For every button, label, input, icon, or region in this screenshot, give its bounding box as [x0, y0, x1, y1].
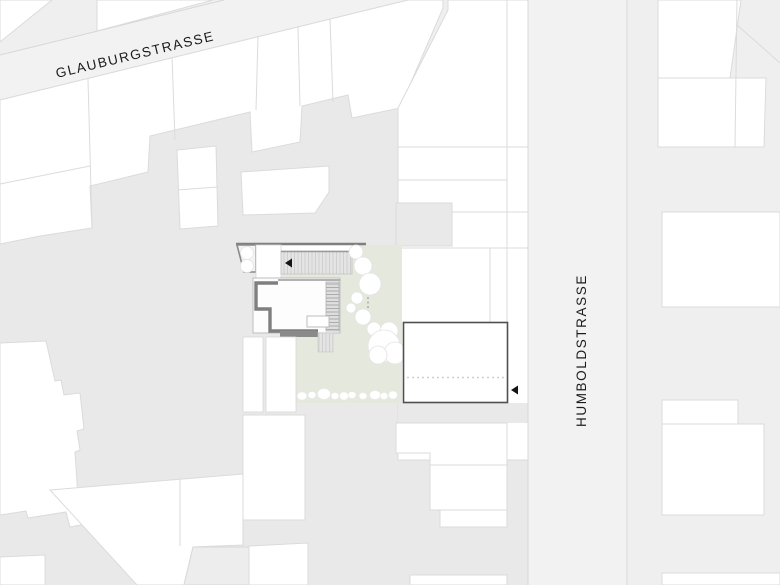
parcel — [662, 424, 764, 515]
terrace-hatch — [318, 333, 333, 352]
courtyard-notch — [398, 403, 528, 423]
parcel — [0, 555, 45, 585]
tree — [355, 309, 371, 325]
site-plan-drawing: GLAUBURGSTRASSE HUMBOLDSTRASSE — [0, 0, 780, 585]
planned-building-outline — [404, 323, 508, 403]
parcels-east-block — [658, 0, 780, 585]
shrub — [308, 392, 316, 399]
humboldstrasse-label: HUMBOLDSTRASSE — [574, 274, 589, 427]
tree — [241, 247, 254, 260]
north-path — [281, 245, 352, 251]
parcel — [184, 547, 249, 585]
tree — [354, 257, 372, 275]
garden-path — [266, 337, 296, 412]
parcel — [658, 0, 741, 78]
courtyard-notch — [396, 203, 452, 246]
shrub — [359, 393, 367, 400]
shrub — [380, 393, 388, 400]
parcel — [241, 166, 329, 215]
shrub — [370, 391, 381, 400]
tree — [241, 260, 254, 273]
shrub — [297, 392, 307, 400]
shrub — [331, 393, 339, 400]
tree — [346, 303, 356, 313]
shrub — [318, 389, 331, 400]
shrub — [389, 391, 398, 399]
project-site — [236, 244, 406, 412]
parcel — [662, 573, 780, 585]
garden-path — [243, 337, 263, 412]
skylight — [307, 316, 329, 327]
parcel — [662, 212, 780, 307]
parcel — [410, 575, 507, 585]
parcel — [662, 400, 738, 424]
building-wall — [280, 331, 318, 337]
parcel — [658, 78, 766, 147]
parcel — [243, 415, 305, 520]
entry-path — [256, 245, 281, 278]
parcel — [249, 543, 308, 585]
tree — [351, 292, 363, 304]
shrub — [348, 392, 356, 399]
site-plan-canvas: GLAUBURGSTRASSE HUMBOLDSTRASSE — [0, 0, 780, 585]
tree — [359, 273, 381, 295]
tree — [369, 346, 387, 364]
shrub — [340, 392, 349, 400]
planned-building — [404, 323, 508, 403]
